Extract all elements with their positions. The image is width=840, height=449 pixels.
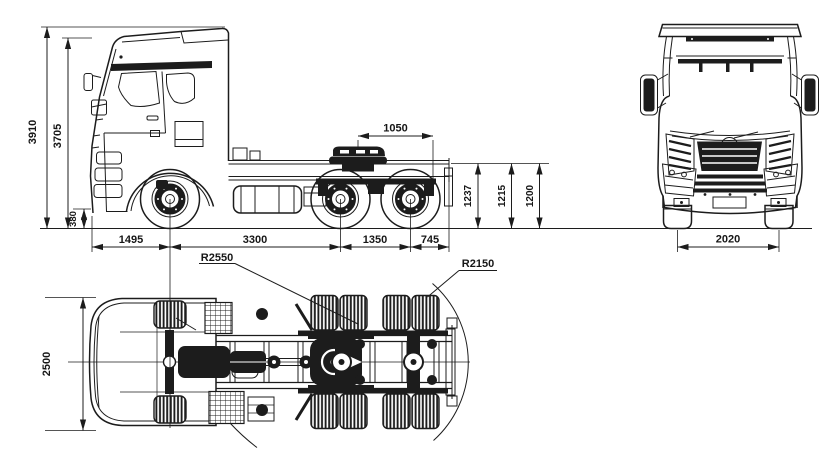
dimensions-front: 2020 xyxy=(678,230,780,252)
blueprint-page: 3910 3705 380 1495 3300 1350 745 1050 xyxy=(0,0,840,449)
fifth-wheel-side xyxy=(329,147,387,172)
roof-deflector-bar xyxy=(659,25,801,42)
dim-overall-width-label: 2500 xyxy=(41,352,53,376)
dim-tandem-spacing-label: 1350 xyxy=(363,234,387,246)
dim-overall-height-label: 3910 xyxy=(27,120,39,144)
windshield-visor-band xyxy=(111,61,212,71)
side-mirror xyxy=(84,74,101,91)
front-wheels xyxy=(664,206,794,229)
door-window xyxy=(119,72,160,107)
front-swing-arc-segment xyxy=(230,423,257,448)
blueprint-canvas: 3910 3705 380 1495 3300 1350 745 1050 xyxy=(0,0,840,449)
door-seam xyxy=(147,72,166,134)
front-bumper xyxy=(663,193,797,213)
roof-side-deflectors xyxy=(663,37,797,97)
dim-fifth-wheel-label: 1050 xyxy=(383,123,407,135)
dim-rear-radius-label: R2150 xyxy=(462,258,494,270)
dim-cab-height-label: 3705 xyxy=(52,124,64,148)
dimensions-side: 3910 3705 380 1495 3300 1350 745 1050 xyxy=(27,27,549,428)
dim-bumper-clearance-label: 380 xyxy=(68,211,79,227)
dim-front-radius-label: R2550 xyxy=(201,252,233,264)
dim-saddle-height-3-label: 1200 xyxy=(525,184,536,207)
dim-saddle-height-1-label: 1237 xyxy=(463,184,474,207)
dim-wheelbase-label: 3300 xyxy=(243,234,267,246)
dim-front-overhang-label: 1495 xyxy=(119,234,143,246)
top-view xyxy=(68,284,470,448)
sleeper-window xyxy=(167,73,195,103)
dim-track-width-label: 2020 xyxy=(716,234,740,246)
mirror-right xyxy=(792,74,819,115)
dim-rear-overhang-label: 745 xyxy=(421,234,439,246)
dim-saddle-height-2-label: 1215 xyxy=(497,184,508,207)
grille xyxy=(693,142,767,193)
windshield-front xyxy=(670,56,790,141)
sleeper-hatch-panel xyxy=(151,122,204,147)
front-view xyxy=(641,25,819,229)
